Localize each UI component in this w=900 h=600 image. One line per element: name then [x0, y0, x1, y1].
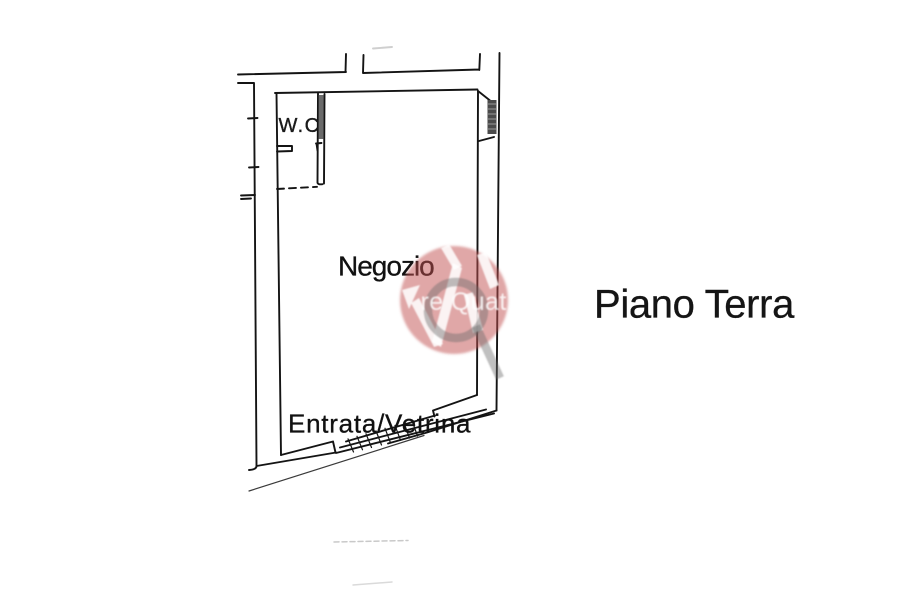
svg-text:W.C: W.C: [279, 115, 321, 137]
svg-text:Piano Terra: Piano Terra: [594, 283, 795, 327]
svg-text:re Quat: re Quat: [421, 288, 507, 316]
svg-text:Entrata/Vetrina: Entrata/Vetrina: [288, 409, 471, 439]
